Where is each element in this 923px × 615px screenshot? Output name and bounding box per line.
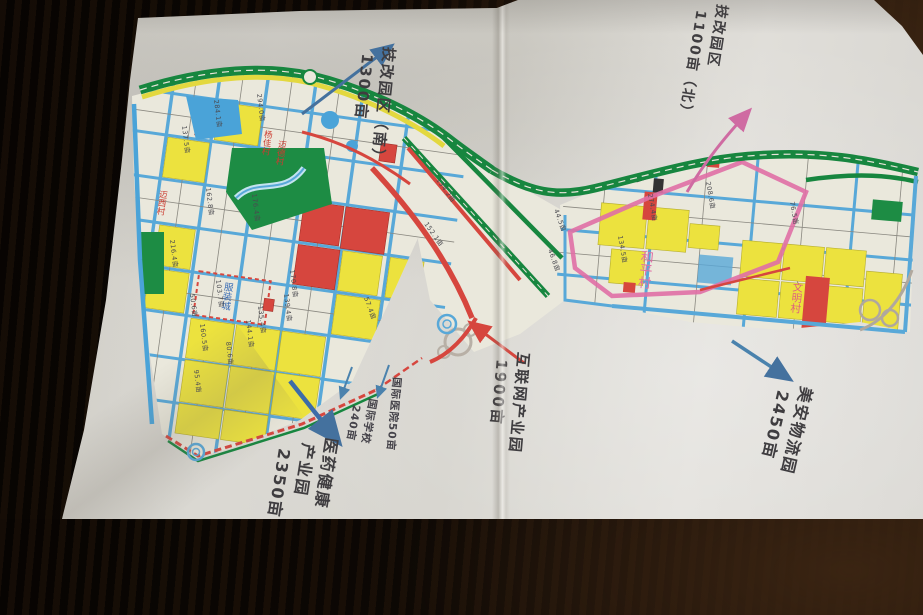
arrow-meian bbox=[732, 341, 788, 378]
paper-map-sheet: 和平村 文明村 杨佳村 迈德村 迈西村 服装城 284.1亩294.0亩137.… bbox=[0, 0, 923, 519]
photo-of-planning-map: { "annotations": { "tech_south": {"line1… bbox=[0, 0, 923, 519]
annotation-internet-park: 互联网产业园 1900亩 bbox=[483, 349, 534, 454]
roundabout-north bbox=[303, 70, 317, 84]
pond bbox=[321, 111, 339, 129]
annotation-pharma-health-park: 医药健康 产业园 2350亩 bbox=[262, 429, 342, 527]
